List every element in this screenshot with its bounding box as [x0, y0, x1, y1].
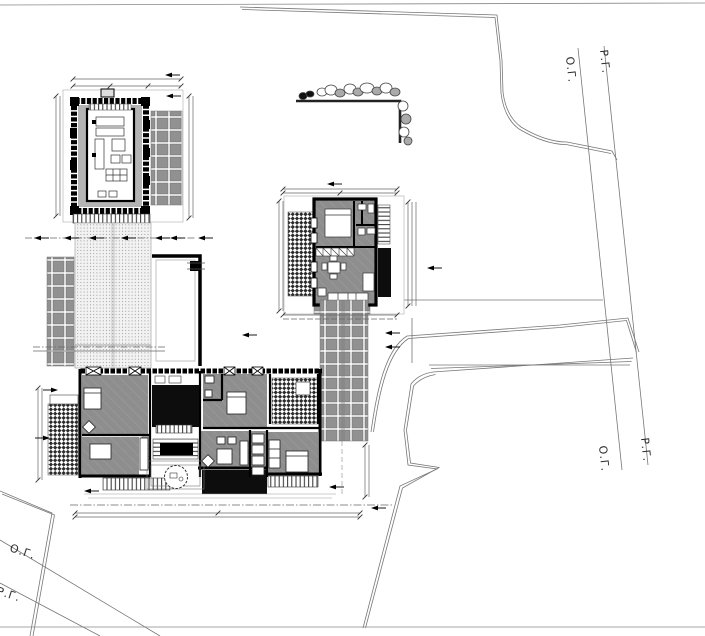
bed — [325, 209, 351, 237]
closet — [269, 440, 280, 468]
label-rg-bottom-left: Р.Г. — [0, 584, 22, 604]
bed — [90, 444, 111, 459]
tree-icon — [390, 88, 400, 96]
tree-icon — [306, 91, 314, 97]
road-north-edge — [371, 318, 639, 432]
table — [112, 139, 125, 151]
bath-fixture — [205, 390, 212, 397]
tree-icon — [335, 89, 345, 97]
pavilion-tile-terrace — [151, 111, 182, 205]
sofa — [96, 117, 124, 126]
bed — [227, 392, 246, 414]
wc — [358, 228, 365, 235]
tree-icon — [401, 114, 411, 124]
guest-house — [284, 196, 404, 314]
direction-arrow-icon — [327, 182, 342, 187]
kitchen-fixture — [252, 456, 264, 465]
guest-deck — [378, 248, 391, 297]
sofa — [96, 128, 124, 136]
chair — [122, 155, 131, 163]
bed — [84, 388, 101, 409]
column-marker — [92, 120, 96, 124]
pavilion — [63, 89, 183, 223]
direction-arrow-icon — [242, 333, 257, 338]
main-house — [48, 367, 336, 498]
direction-arrow-icon — [371, 506, 386, 511]
direction-arrow-icon — [170, 236, 185, 241]
street-line-rg-east — [604, 46, 648, 465]
access-road — [371, 318, 639, 432]
boundary-north-east — [240, 7, 617, 160]
top-edge-line — [0, 3, 705, 5]
sink — [358, 204, 366, 210]
driveway — [320, 300, 368, 497]
chair — [111, 155, 120, 163]
kitchen-fixture — [252, 467, 264, 475]
column-marker — [92, 153, 96, 157]
chair — [330, 274, 337, 279]
courtyard-lawn — [152, 256, 205, 366]
pergola-post — [296, 382, 310, 395]
boundary-south-west-inner — [2, 494, 55, 636]
direction-arrow-icon — [198, 236, 213, 241]
coffee-table — [217, 449, 232, 464]
chair — [341, 263, 346, 270]
armchair — [228, 437, 236, 444]
kitchen-fixture — [252, 434, 264, 443]
shrub-icon — [398, 101, 408, 111]
site-plan-drawing: О.Г. Р.Г. О.Г. Р.Г. О.Г. Р.Г. — [0, 0, 705, 636]
west-checker-terrace — [48, 404, 78, 475]
porch-columns — [156, 425, 192, 433]
sink — [367, 228, 375, 234]
centre-black-patio — [152, 385, 200, 427]
bath-fixture — [205, 376, 214, 383]
direction-arrow-icon — [43, 388, 58, 393]
armchair — [217, 437, 225, 444]
street-line-og-east — [578, 48, 622, 470]
pavilion-entry-steps — [89, 104, 131, 110]
cabinet — [363, 273, 374, 291]
boundary-north-east-inner — [242, 10, 611, 154]
closet — [140, 438, 148, 470]
direction-arrow-icon — [385, 331, 400, 336]
guest-stairs — [378, 205, 390, 244]
sofa — [95, 139, 104, 169]
wc — [368, 204, 374, 213]
kitchen-fixture — [252, 445, 264, 454]
hedge-with-trees — [296, 83, 412, 145]
pavilion-chimney — [101, 89, 114, 97]
label-rg-top-right: Р.Г. — [597, 49, 612, 75]
road-north-edge-inner — [374, 321, 637, 433]
bath-fixture — [169, 376, 181, 383]
chair — [330, 256, 337, 261]
garden-path — [75, 223, 151, 368]
bed — [286, 451, 308, 472]
label-og-bottom-left: О.Г. — [8, 541, 37, 562]
stool — [98, 191, 106, 197]
label-og-top-right: О.Г. — [563, 56, 579, 84]
pavilion-south-steps — [73, 214, 150, 223]
dining-table — [328, 262, 340, 273]
boundary-south-west — [0, 491, 52, 636]
round-tree-icon — [165, 466, 188, 489]
hedge-wall — [296, 101, 400, 143]
path-paving — [75, 223, 151, 368]
bath-fixture — [155, 376, 165, 383]
direction-arrow-icon — [427, 266, 442, 271]
sofa — [240, 441, 248, 465]
site-plan-canvas: О.Г. Р.Г. О.Г. Р.Г. О.Г. Р.Г. — [0, 0, 705, 636]
chair — [322, 263, 327, 270]
lawn-edge — [156, 260, 195, 361]
direction-arrow-icon — [155, 236, 170, 241]
ne-checker-patio — [272, 378, 318, 424]
tree-icons — [299, 83, 412, 145]
direction-arrow-icon — [84, 489, 99, 494]
gate-block — [190, 261, 201, 271]
tv-stand — [318, 288, 326, 296]
direction-arrow-icon — [34, 236, 49, 241]
south-steps-west — [103, 478, 170, 490]
stool — [109, 191, 117, 197]
courtyard-wall — [152, 256, 200, 366]
tree-icon — [404, 137, 412, 145]
outdoor-counter — [50, 395, 78, 404]
south-steps-east — [268, 476, 318, 487]
direction-arrow-icon — [165, 73, 180, 78]
label-rg-bottom-right: Р.Г. — [638, 437, 653, 463]
label-og-bottom-right: О.Г. — [596, 445, 612, 473]
guest-checker-terrace — [288, 212, 313, 296]
stair-core — [160, 443, 193, 455]
direction-arrow-icon — [166, 94, 181, 99]
shrub-icon — [399, 127, 409, 137]
west-tile-terrace — [47, 257, 74, 366]
